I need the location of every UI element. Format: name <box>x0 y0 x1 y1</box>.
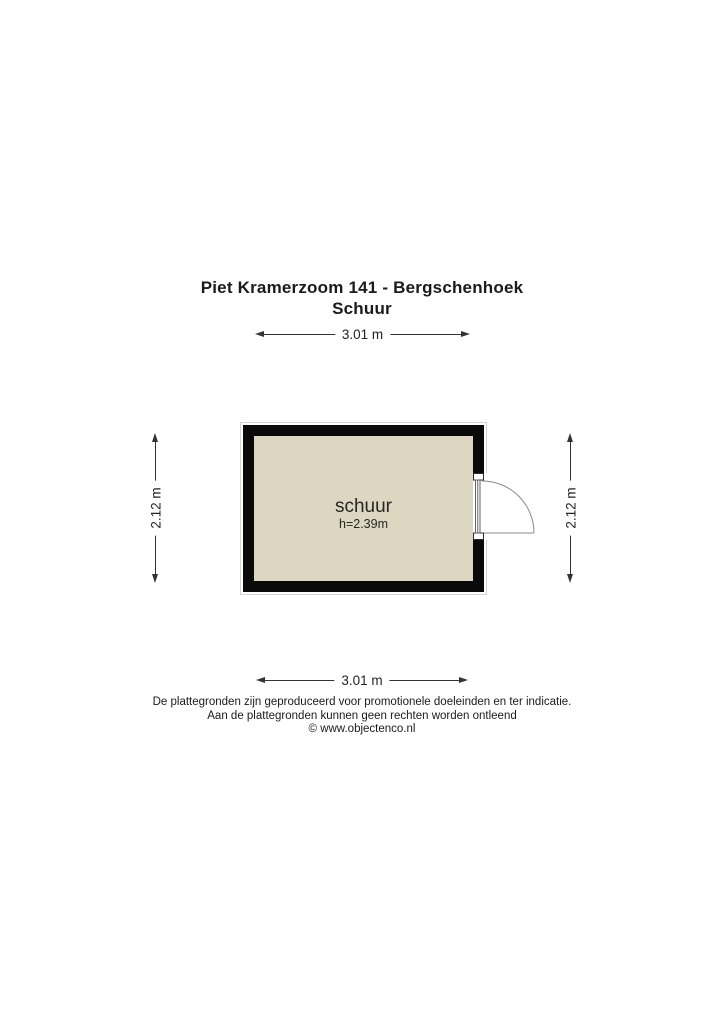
room-label: schuur h=2.39m <box>254 497 473 532</box>
room-name: schuur <box>254 497 473 517</box>
copyright-line: © www.objectenco.nl <box>0 723 724 737</box>
room-ceiling-height: h=2.39m <box>254 517 473 532</box>
dimension-top: 3.01 m <box>255 327 470 342</box>
page-title: Piet Kramerzoom 141 - Bergschenhoek Schu… <box>0 277 724 319</box>
door <box>462 466 540 548</box>
dimension-left-label: 2.12 m <box>148 480 163 535</box>
arrowhead-down-icon <box>567 574 573 583</box>
door-jamb-bottom <box>474 533 484 540</box>
arrowhead-right-icon <box>459 677 468 683</box>
disclaimer-line-1: De plattegronden zijn geproduceerd voor … <box>0 696 724 710</box>
arrowhead-down-icon <box>152 574 158 583</box>
dimension-right-label: 2.12 m <box>563 480 578 535</box>
floorplan-page: Piet Kramerzoom 141 - Bergschenhoek Schu… <box>0 0 724 1024</box>
dimension-left: 2.12 m <box>148 433 163 583</box>
disclaimer-line-2: Aan de plattegronden kunnen geen rechten… <box>0 710 724 724</box>
disclaimer: De plattegronden zijn geproduceerd voor … <box>0 696 724 737</box>
arrowhead-up-icon <box>152 433 158 442</box>
door-jamb-top <box>474 474 484 481</box>
dimension-top-label: 3.01 m <box>335 327 390 342</box>
dimension-bottom: 3.01 m <box>256 673 468 688</box>
arrowhead-left-icon <box>256 677 265 683</box>
dimension-right: 2.12 m <box>563 433 578 583</box>
room-schuur: schuur h=2.39m <box>254 436 473 581</box>
title-room-type: Schuur <box>0 298 724 319</box>
arrowhead-up-icon <box>567 433 573 442</box>
arrowhead-right-icon <box>461 331 470 337</box>
title-address: Piet Kramerzoom 141 - Bergschenhoek <box>0 277 724 298</box>
arrowhead-left-icon <box>255 331 264 337</box>
floorplan-drawing: schuur h=2.39m <box>243 425 484 592</box>
dimension-bottom-label: 3.01 m <box>334 673 389 688</box>
door-swing-arc-icon <box>482 481 534 533</box>
